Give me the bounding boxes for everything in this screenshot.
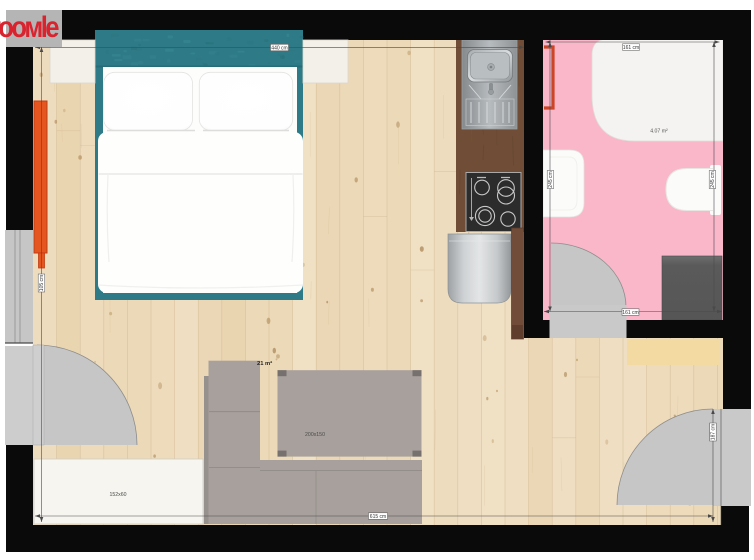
svg-text:440 cm: 440 cm — [271, 45, 287, 51]
svg-text:187 cm: 187 cm — [711, 424, 717, 440]
svg-text:245 cm: 245 cm — [710, 171, 716, 187]
svg-text:152x60: 152x60 — [109, 492, 126, 498]
svg-text:105 cm: 105 cm — [39, 275, 45, 291]
svg-text:rooмle: rooмle — [0, 10, 59, 43]
svg-text:200x150: 200x150 — [305, 432, 325, 438]
svg-text:4.07 m²: 4.07 m² — [650, 129, 668, 135]
svg-text:161 cm: 161 cm — [622, 310, 638, 316]
svg-text:245 cm: 245 cm — [548, 171, 554, 187]
svg-text:21 m²: 21 m² — [257, 360, 272, 367]
svg-text:161 cm: 161 cm — [623, 45, 639, 51]
svg-text:615 cm: 615 cm — [370, 514, 386, 520]
